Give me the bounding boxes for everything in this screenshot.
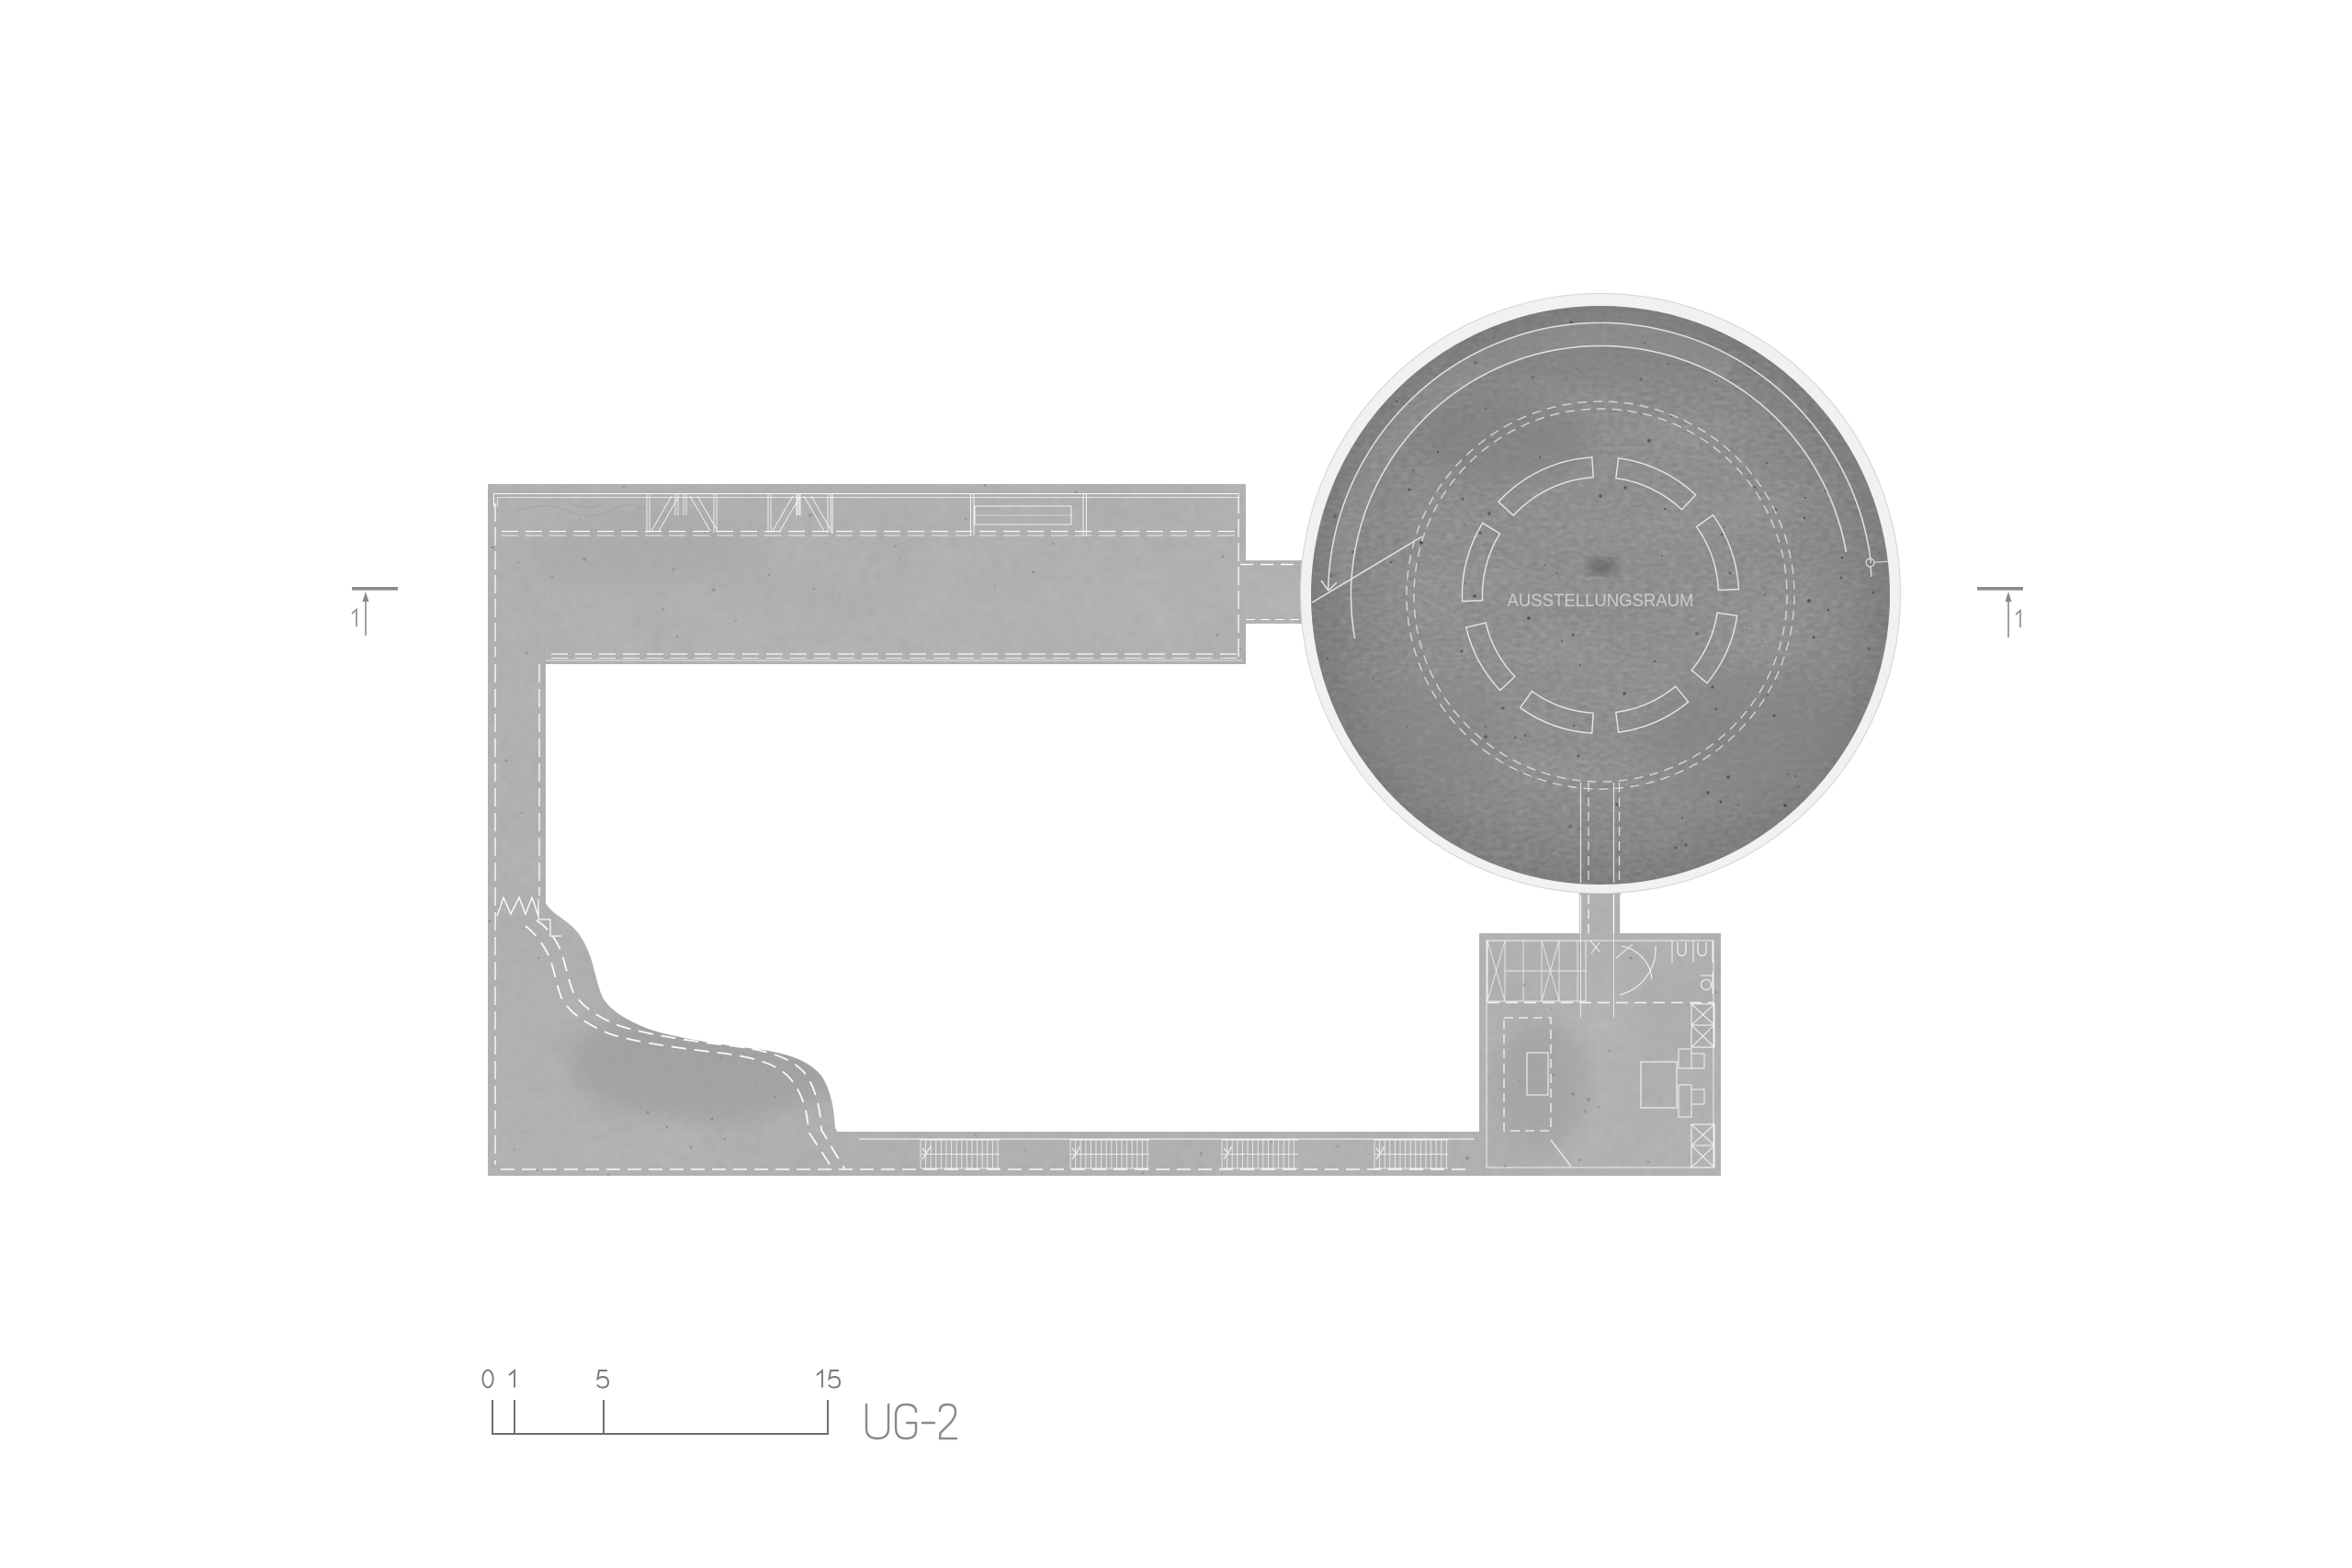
svg-text:AUSSTELLUNGSRAUM: AUSSTELLUNGSRAUM xyxy=(1508,592,1694,611)
